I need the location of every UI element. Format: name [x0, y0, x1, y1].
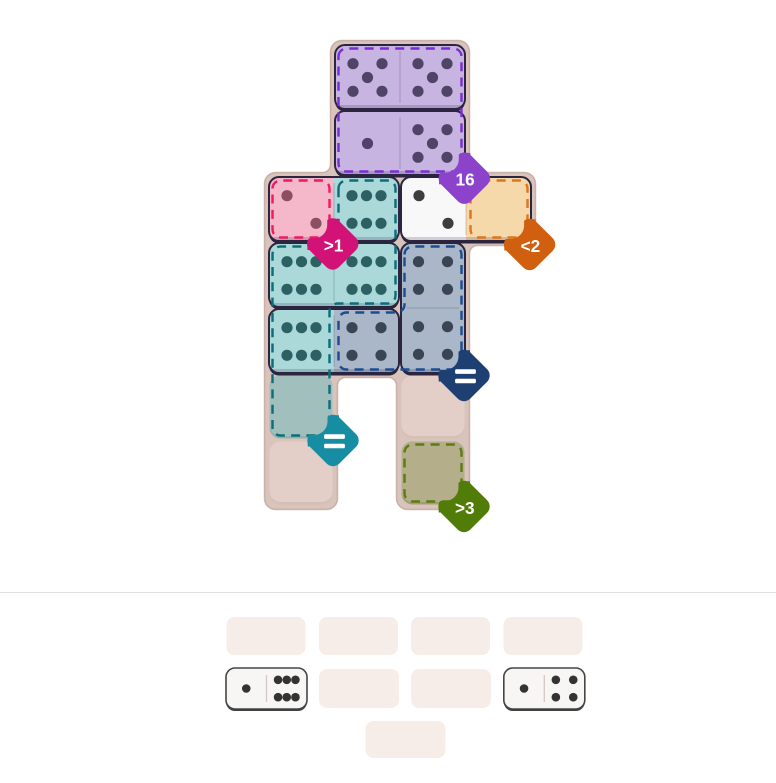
- svg-text:>3: >3: [455, 498, 475, 518]
- svg-text:>1: >1: [324, 236, 344, 256]
- svg-text:16: 16: [456, 170, 475, 190]
- svg-text:<2: <2: [521, 236, 541, 256]
